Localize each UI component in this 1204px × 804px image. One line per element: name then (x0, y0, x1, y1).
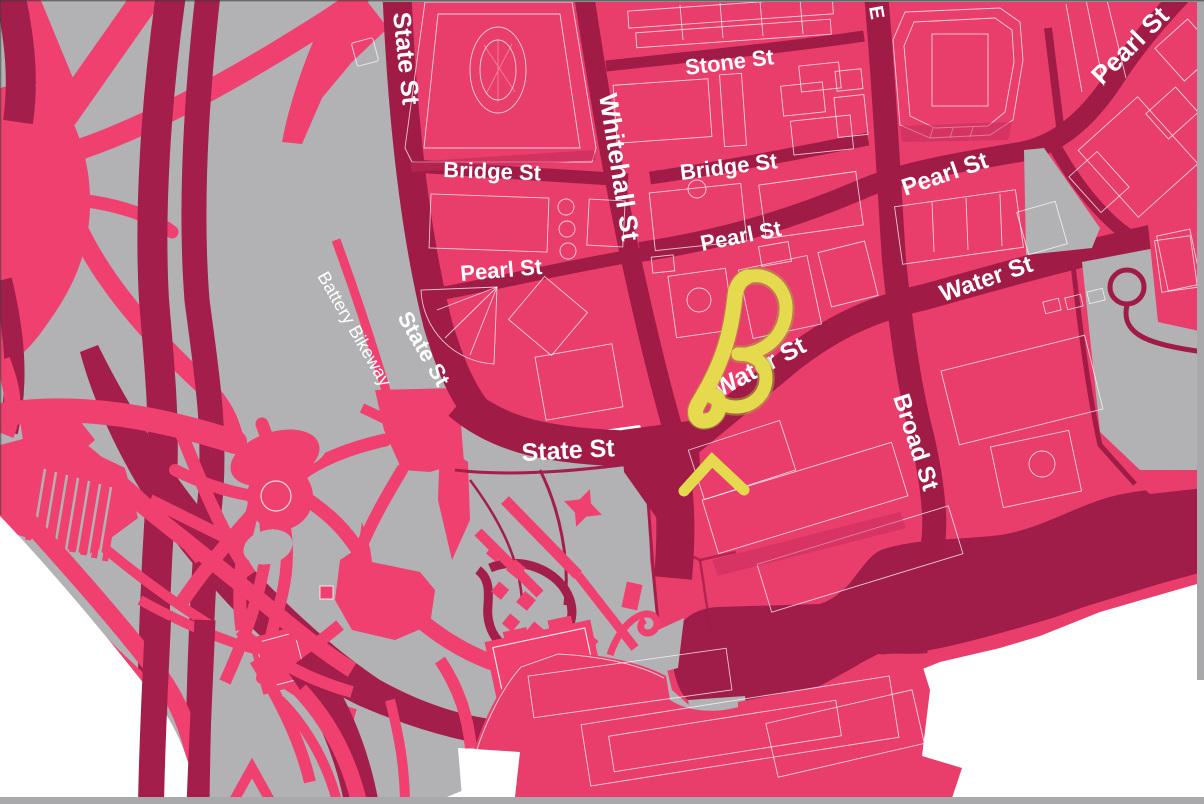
svg-text:State St: State St (521, 434, 616, 467)
svg-text:Bridge St: Bridge St (443, 157, 542, 185)
